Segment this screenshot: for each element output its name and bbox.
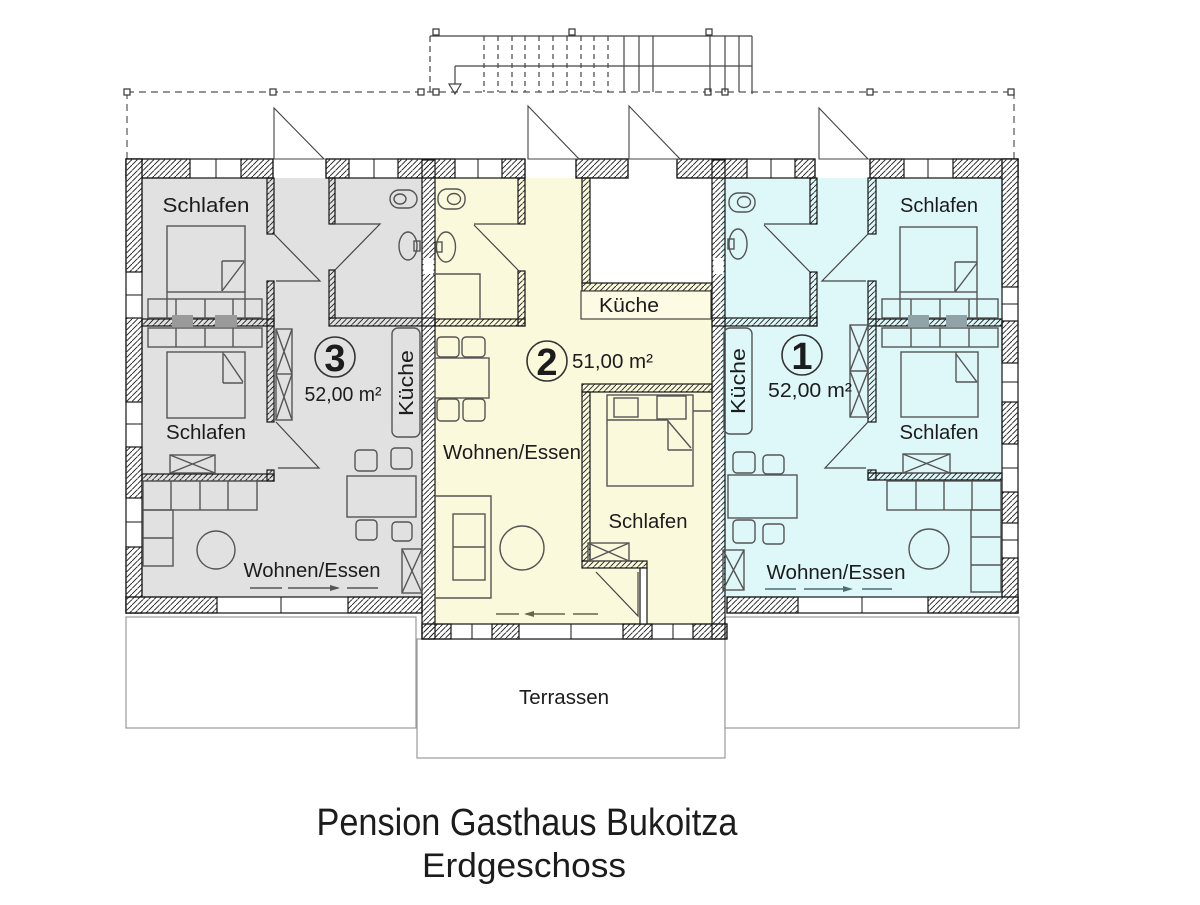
svg-text:Erdgeschoss: Erdgeschoss (422, 847, 626, 885)
svg-text:Schlafen: Schlafen (166, 422, 246, 444)
svg-text:Schlafen: Schlafen (163, 195, 250, 217)
svg-text:Terrassen: Terrassen (519, 687, 609, 709)
svg-text:Schlafen: Schlafen (900, 195, 978, 217)
svg-text:Schlafen: Schlafen (900, 422, 979, 444)
svg-text:Schlafen: Schlafen (609, 511, 688, 533)
svg-text:Küche: Küche (396, 350, 418, 416)
svg-text:Küche: Küche (599, 295, 659, 317)
svg-text:2: 2 (536, 342, 557, 384)
svg-text:Küche: Küche (728, 348, 750, 414)
svg-text:52,00 m²: 52,00 m² (305, 384, 382, 406)
svg-text:3: 3 (324, 338, 345, 380)
svg-text:52,00 m²: 52,00 m² (768, 380, 852, 402)
svg-text:Wohnen/Essen: Wohnen/Essen (244, 560, 381, 582)
svg-text:Pension Gasthaus Bukoitza: Pension Gasthaus Bukoitza (317, 802, 739, 844)
svg-text:Wohnen/Essen: Wohnen/Essen (443, 442, 581, 464)
svg-text:Wohnen/Essen: Wohnen/Essen (767, 562, 906, 584)
svg-text:51,00 m²: 51,00 m² (572, 351, 653, 373)
svg-text:1: 1 (791, 336, 812, 378)
